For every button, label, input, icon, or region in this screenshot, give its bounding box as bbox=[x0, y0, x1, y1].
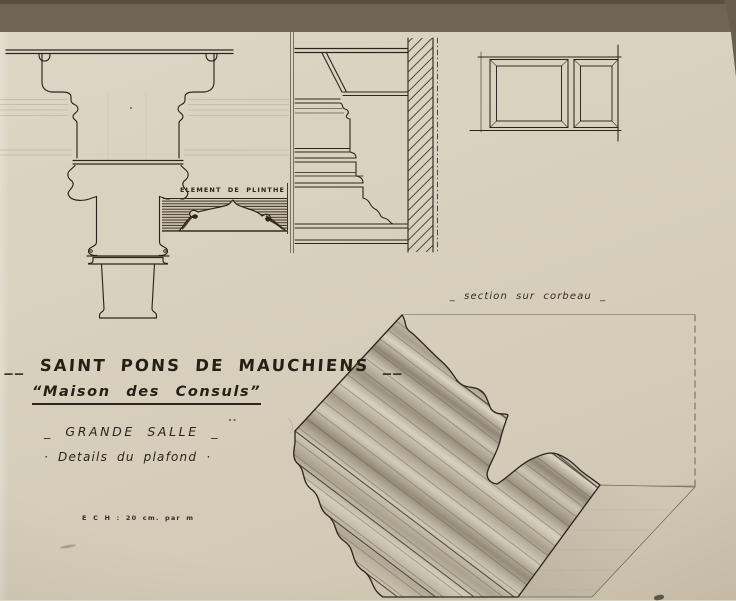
scale-note: E C H : 20 cm. par m bbox=[82, 514, 194, 522]
drawing-mouluration bbox=[294, 30, 438, 253]
drawing-poutre-corbeau bbox=[6, 50, 233, 318]
title-commune: __ SAINT PONS DE MAUCHIENS __ bbox=[4, 356, 287, 375]
drawing-corbeau-perspective bbox=[280, 300, 710, 600]
label-element-plinthe: ELEMENT DE PLINTHE bbox=[180, 186, 280, 194]
label-section-corbeau: _ section sur corbeau _ bbox=[433, 291, 623, 302]
title-subject: · Details du plafond · bbox=[44, 450, 192, 464]
photo-mat-top bbox=[0, 0, 736, 32]
title-room: _ GRANDE SALLE _ bbox=[44, 424, 196, 439]
title-building: “Maison des Consuls” bbox=[32, 384, 261, 405]
drawing-caisson bbox=[470, 45, 621, 141]
pencil-guidelines bbox=[0, 93, 293, 433]
drawing-sheet bbox=[0, 0, 736, 600]
